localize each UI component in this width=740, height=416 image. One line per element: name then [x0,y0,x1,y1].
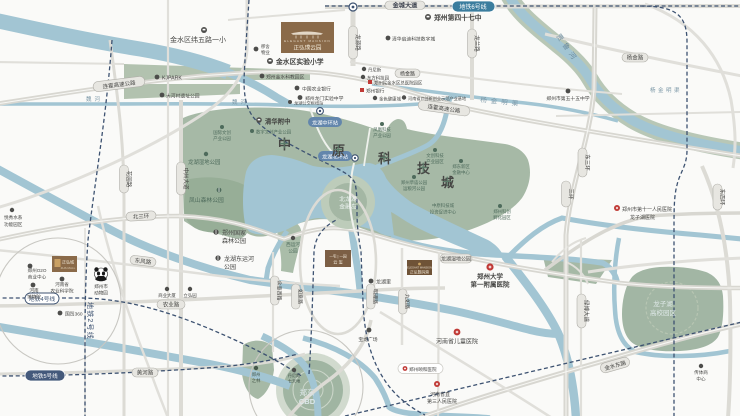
svg-text:河南省直: 河南省直 [430,391,450,398]
svg-text:正弘城: 正弘城 [62,259,74,265]
svg-text:中心: 中心 [696,376,706,383]
svg-text:河南省IT创新创业示范产业基地: 河南省IT创新创业示范产业基地 [408,95,467,102]
svg-text:第一附属医院: 第一附属医院 [471,280,511,289]
svg-text:森林公园: 森林公园 [222,237,246,245]
svg-text:ELEGANT MANSION: ELEGANT MANSION [407,266,432,270]
svg-text:龙湖里: 龙湖里 [376,279,391,286]
svg-text:龙湖湿地公园: 龙湖湿地公园 [188,158,220,166]
svg-text:清华附中: 清华附中 [265,117,291,126]
svg-text:魏河: 魏河 [86,95,103,103]
svg-text:地铁6号线: 地铁6号线 [459,3,486,11]
svg-text:CBD: CBD [299,397,316,406]
svg-text:ZHS MALL: ZHS MALL [61,266,76,270]
svg-text:河南省儿童医院: 河南省儿童医院 [436,338,478,346]
svg-text:ELEGANT MANSION: ELEGANT MANSION [284,39,331,43]
svg-text:国贸360: 国贸360 [65,311,83,318]
svg-text:龙兰路: 龙兰路 [473,35,481,52]
svg-text:动物园: 动物园 [94,290,108,297]
svg-text:郑州大学: 郑州大学 [477,272,504,281]
svg-text:立弘园: 立弘园 [183,292,197,299]
svg-text:三环: 三环 [567,188,574,200]
svg-text:龙湖公交枢纽站: 龙湖公交枢纽站 [294,99,323,106]
svg-text:龙湖湿地公园: 龙湖湿地公园 [441,256,471,263]
svg-text:花园路: 花园路 [125,171,133,188]
svg-text:数字文创产业公园: 数字文创产业公园 [256,129,292,136]
svg-text:博物院: 博物院 [27,294,41,301]
svg-text:七天地: 七天地 [288,378,301,385]
svg-text:杨金明渠: 杨金明渠 [650,86,682,94]
svg-text:郑州颐和医院: 郑州颐和医院 [409,366,437,373]
svg-text:郑州金水科教园区: 郑州金水科教园区 [266,74,305,81]
svg-text:传体商: 传体商 [694,369,708,376]
svg-text:投资促进中心: 投资促进中心 [430,209,457,216]
svg-text:黄河路: 黄河路 [137,369,154,377]
svg-text:郑州科创: 郑州科创 [493,208,511,215]
svg-text:地铁5号线: 地铁5号线 [32,372,58,380]
svg-text:商业中心: 商业中心 [28,274,47,281]
svg-text:KJPARK: KJPARK [162,76,182,82]
svg-text:众意西路: 众意西路 [276,280,283,300]
svg-text:凤山森林公园: 凤山森林公园 [189,196,224,204]
svg-text:正弘璞云园: 正弘璞云园 [294,44,322,52]
svg-text:郑州市: 郑州市 [94,283,108,290]
svg-text:西运河: 西运河 [286,241,300,248]
svg-text:产业公园: 产业公园 [373,132,391,139]
svg-text:商业大厦: 商业大厦 [158,292,176,299]
svg-text:凤凰科技: 凤凰科技 [373,126,391,133]
svg-text:宝龙广场: 宝龙广场 [358,336,377,343]
svg-text:中原科技城: 中原科技城 [432,202,455,209]
svg-text:农业路: 农业路 [163,301,180,309]
svg-text:清华启迪科技数字城: 清华启迪科技数字城 [392,36,435,43]
svg-text:金水区纬五路一小: 金水区纬五路一小 [170,35,226,44]
svg-text:运粮河公园: 运粮河公园 [403,185,426,192]
svg-text:郑州市第五十五中学: 郑州市第五十五中学 [546,95,589,102]
svg-text:一宅 | 一园: 一宅 | 一园 [329,254,347,259]
svg-text:东四环: 东四环 [719,189,727,206]
svg-text:九如路: 九如路 [404,294,411,309]
svg-text:金融中心: 金融中心 [452,169,470,176]
svg-text:龙湖中环站: 龙湖中环站 [312,118,338,126]
svg-text:云 玺: 云 玺 [333,259,343,266]
svg-text:河南省: 河南省 [55,281,69,288]
svg-text:孵化园区: 孵化园区 [493,214,511,221]
svg-text:郑州市第十一人民医院: 郑州市第十一人民医院 [622,206,672,213]
svg-text:郑州草庙公园: 郑州草庙公园 [401,179,428,186]
svg-text:郑州银行: 郑州银行 [366,87,385,94]
svg-text:郑州O2O: 郑州O2O [28,267,47,274]
svg-text:之林: 之林 [252,377,261,384]
svg-text:龙子湖医院: 龙子湖医院 [630,214,655,221]
svg-text:产业园区: 产业园区 [426,158,444,165]
svg-text:大河村遗址公园: 大河村遗址公园 [166,93,200,100]
svg-text:第三人民医院: 第三人民医院 [427,398,457,405]
svg-text:金融岛: 金融岛 [339,203,357,211]
svg-text:金水区实验小学: 金水区实验小学 [275,57,324,66]
svg-text:悦秀水系: 悦秀水系 [4,214,23,221]
svg-text:农业科学院: 农业科学院 [51,288,74,295]
svg-text:杨金路: 杨金路 [627,54,644,62]
svg-text:中国农业银行: 中国农业银行 [302,86,331,93]
svg-text:郑东新区: 郑东新区 [452,163,470,170]
svg-text:龙湖东运河: 龙湖东运河 [224,255,254,263]
svg-text:地铁2号线: 地铁2号线 [86,302,95,340]
svg-text:河南: 河南 [29,287,39,293]
svg-text:龙子湖: 龙子湖 [653,299,673,308]
svg-text:郑东: 郑东 [300,387,315,397]
svg-text:郑州国家: 郑州国家 [222,229,246,237]
svg-text:金城大道: 金城大道 [392,2,419,10]
svg-text:绿博大道: 绿博大道 [583,300,591,323]
svg-text:椤舍: 椤舍 [261,43,270,50]
svg-text:功能园区: 功能园区 [4,221,23,228]
svg-text:产业公园: 产业公园 [213,135,231,142]
svg-text:物业: 物业 [261,49,270,56]
svg-text:如意路: 如意路 [297,289,304,304]
svg-text:魏河: 魏河 [232,98,249,106]
svg-text:郑州第四十七中: 郑州第四十七中 [434,13,482,22]
svg-text:高校园区: 高校园区 [650,308,677,317]
svg-text:公园: 公园 [224,264,236,271]
svg-text:郑州民金水区总医院园区: 郑州民金水区总医院园区 [374,79,423,86]
svg-text:正弘数码港: 正弘数码港 [410,269,429,274]
svg-text:东三环: 东三环 [584,154,592,171]
svg-text:郑州: 郑州 [252,371,261,378]
svg-text:国际文创: 国际文创 [213,129,231,136]
svg-text:丹尼斯: 丹尼斯 [368,66,382,73]
svg-text:龙源路: 龙源路 [354,34,362,51]
svg-text:中州大道: 中州大道 [182,167,190,190]
svg-text:明理路: 明理路 [372,289,379,304]
svg-text:金色健康城: 金色健康城 [379,95,402,102]
svg-text:杨金路: 杨金路 [400,70,415,77]
svg-text:文创科技: 文创科技 [426,152,444,159]
svg-text:北龙湖: 北龙湖 [339,195,357,203]
